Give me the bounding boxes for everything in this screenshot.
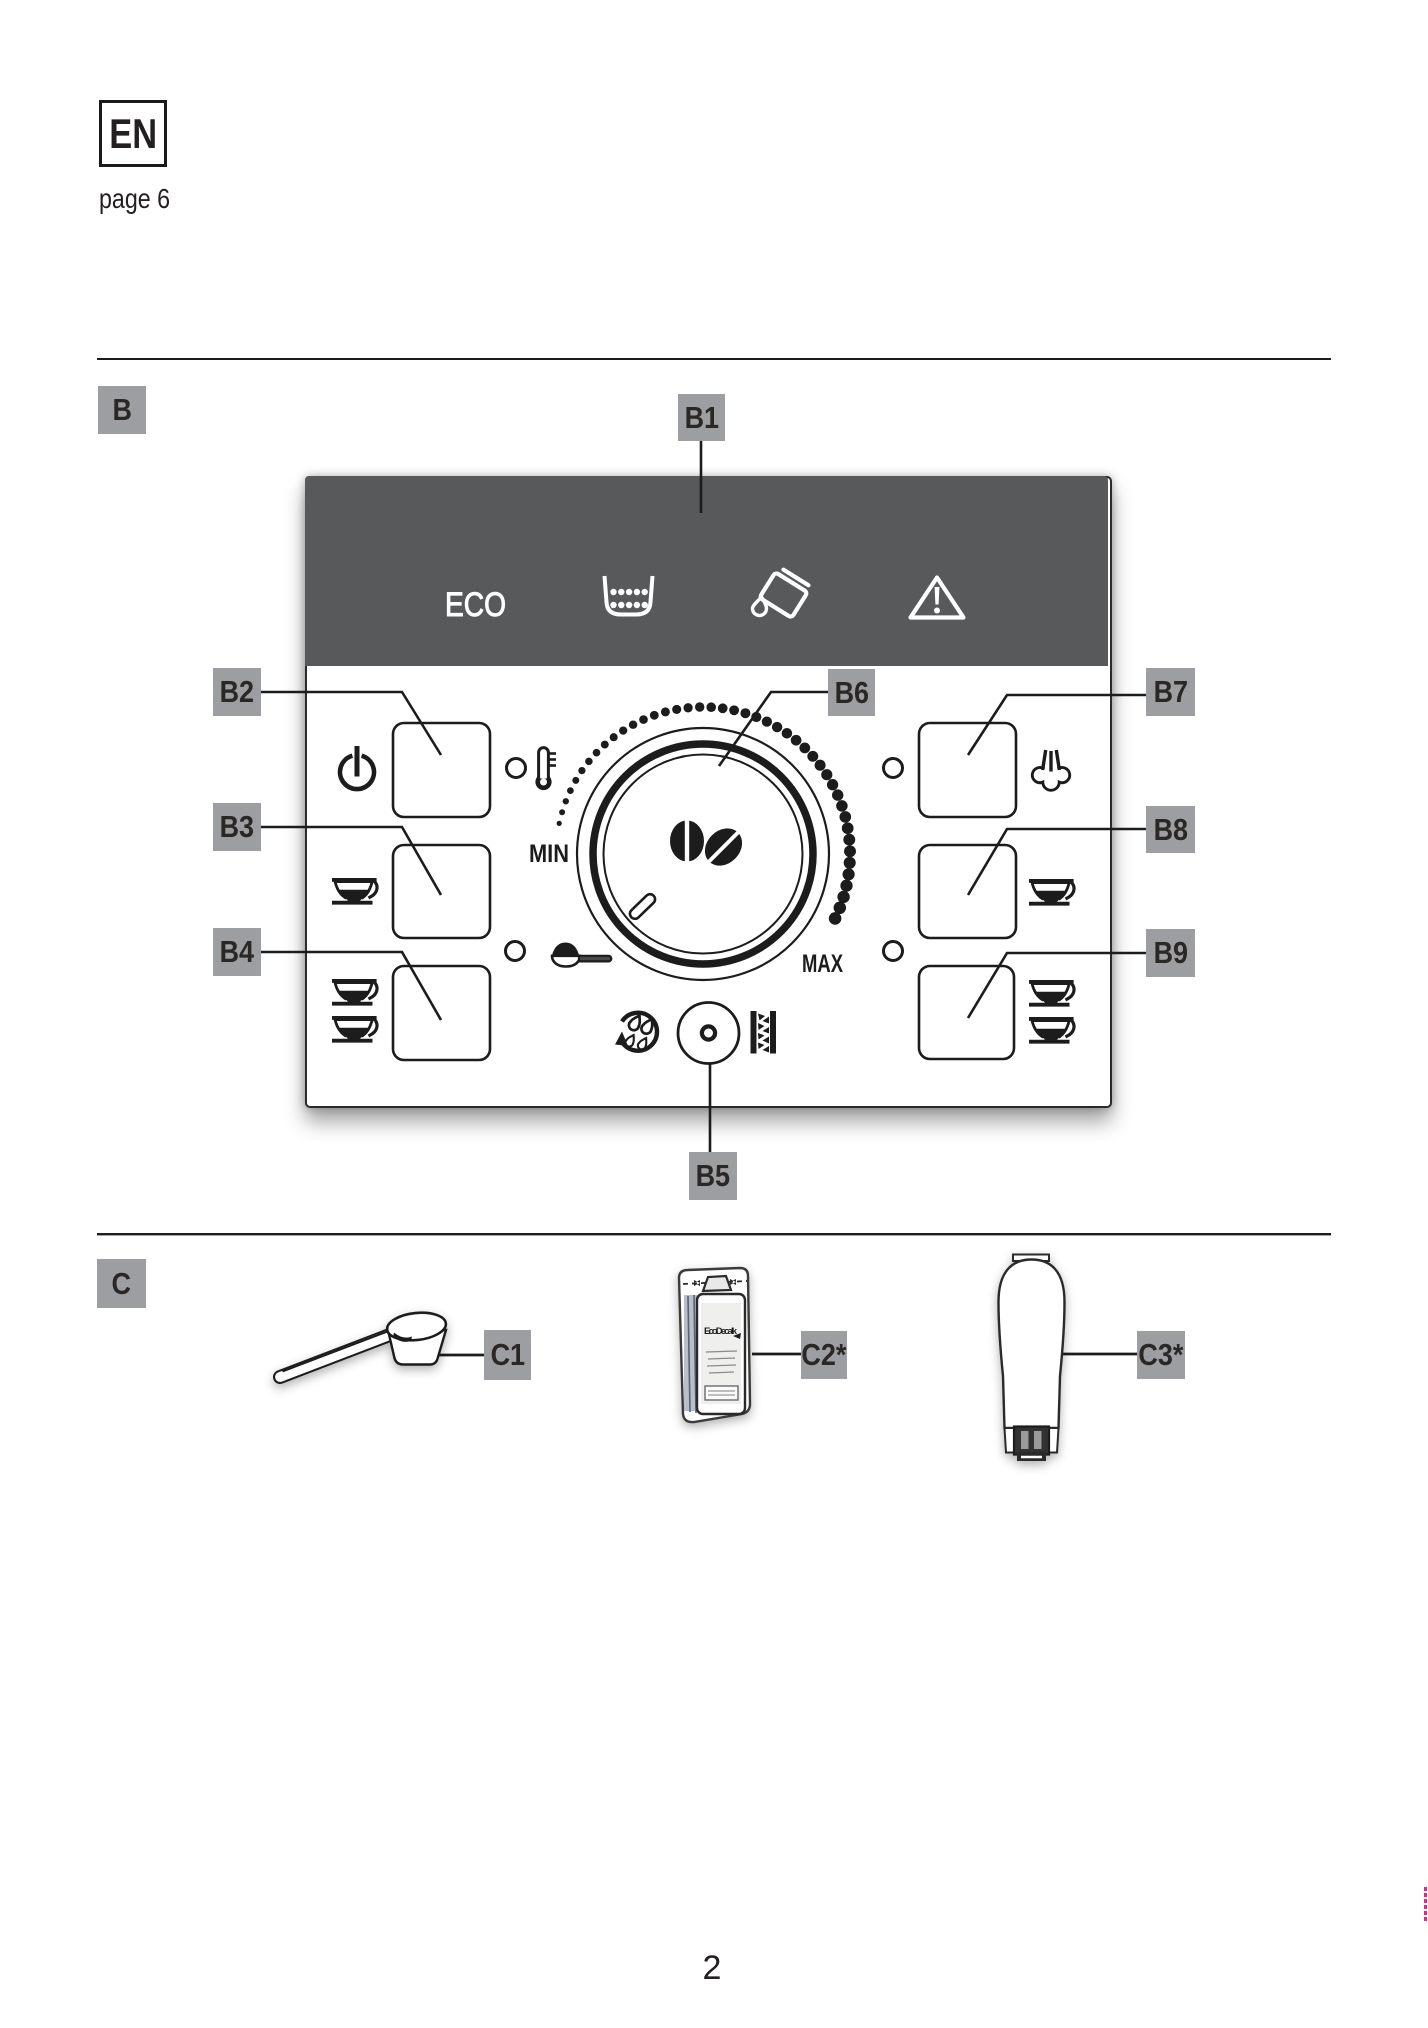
svg-text:EcoDecalk: EcoDecalk (704, 1326, 738, 1337)
svg-text:MAX: MAX (802, 950, 843, 978)
svg-text:ECO: ECO (445, 586, 506, 624)
svg-text:MIN: MIN (529, 840, 569, 868)
